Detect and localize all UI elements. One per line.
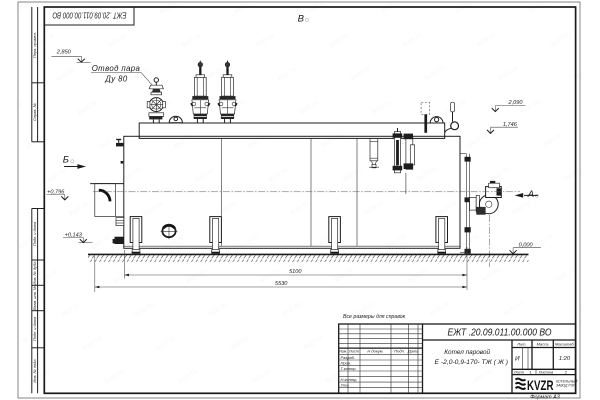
svg-text:Изм.: Изм. xyxy=(339,349,348,354)
svg-text:1:20: 1:20 xyxy=(559,356,571,362)
svg-text:2,850: 2,850 xyxy=(56,50,72,56)
svg-text:Утв.: Утв. xyxy=(341,383,350,388)
svg-text:Формат А3: Формат А3 xyxy=(530,394,560,400)
svg-text:Н докум.: Н докум. xyxy=(367,349,383,354)
svg-text:Масса: Масса xyxy=(537,342,550,347)
svg-text:5530: 5530 xyxy=(275,281,288,287)
svg-text:1,746: 1,746 xyxy=(503,122,518,128)
svg-text:Подп. и дата: Подп. и дата xyxy=(32,221,37,246)
svg-text:Лист: Лист xyxy=(348,349,360,354)
svg-text:Справ. №: Справ. № xyxy=(32,102,37,120)
svg-text:В: В xyxy=(298,13,305,24)
svg-text:ЕЖТ .20.09.011.00.000 ВО: ЕЖТ .20.09.011.00.000 ВО xyxy=(52,10,126,19)
svg-text:Инв. № дубл.: Инв. № дубл. xyxy=(32,261,37,285)
svg-text:Е -2,0-0,9-170- ТЖ ( Ж ): Е -2,0-0,9-170- ТЖ ( Ж ) xyxy=(435,359,509,366)
svg-text:Перв. примен.: Перв. примен. xyxy=(32,32,37,58)
svg-text:Взам. инв. №: Взам. инв. № xyxy=(32,285,37,310)
svg-text:Листов: Листов xyxy=(538,369,554,374)
svg-text:А: А xyxy=(527,189,534,200)
svg-text:Все размеры для справок: Все размеры для справок xyxy=(343,314,406,320)
svg-text:ЗАВОД РЭП: ЗАВОД РЭП xyxy=(556,384,576,388)
svg-text:2,090: 2,090 xyxy=(508,100,524,106)
svg-text:1: 1 xyxy=(529,369,531,374)
svg-text:И: И xyxy=(515,356,520,363)
svg-text:Б: Б xyxy=(63,155,69,166)
svg-text:Подп.: Подп. xyxy=(394,349,405,354)
svg-text:Отвод пара: Отвод пара xyxy=(92,64,141,73)
svg-text:Лист: Лист xyxy=(513,369,525,374)
svg-text:Инв. № подл.: Инв. № подл. xyxy=(32,358,37,382)
svg-text:Т.контр.: Т.контр. xyxy=(341,366,357,371)
svg-text:Дата: Дата xyxy=(407,349,419,354)
svg-text:Масштаб: Масштаб xyxy=(555,342,574,347)
svg-text:Разраб.: Разраб. xyxy=(341,355,355,360)
svg-text:Лит.: Лит. xyxy=(516,342,526,347)
svg-text:Пров.: Пров. xyxy=(341,360,352,365)
svg-text:ЕЖТ .20.09.011.00.000 ВО: ЕЖТ .20.09.011.00.000 ВО xyxy=(448,328,552,339)
svg-text:Подп. и дата: Подп. и дата xyxy=(32,316,37,341)
svg-text:5100: 5100 xyxy=(289,269,302,275)
svg-text:KVZR: KVZR xyxy=(527,378,554,393)
svg-text:Котел паровой: Котел паровой xyxy=(444,348,490,356)
svg-text:Н.контр.: Н.контр. xyxy=(341,377,358,382)
svg-text:Ду 80: Ду 80 xyxy=(104,75,128,84)
